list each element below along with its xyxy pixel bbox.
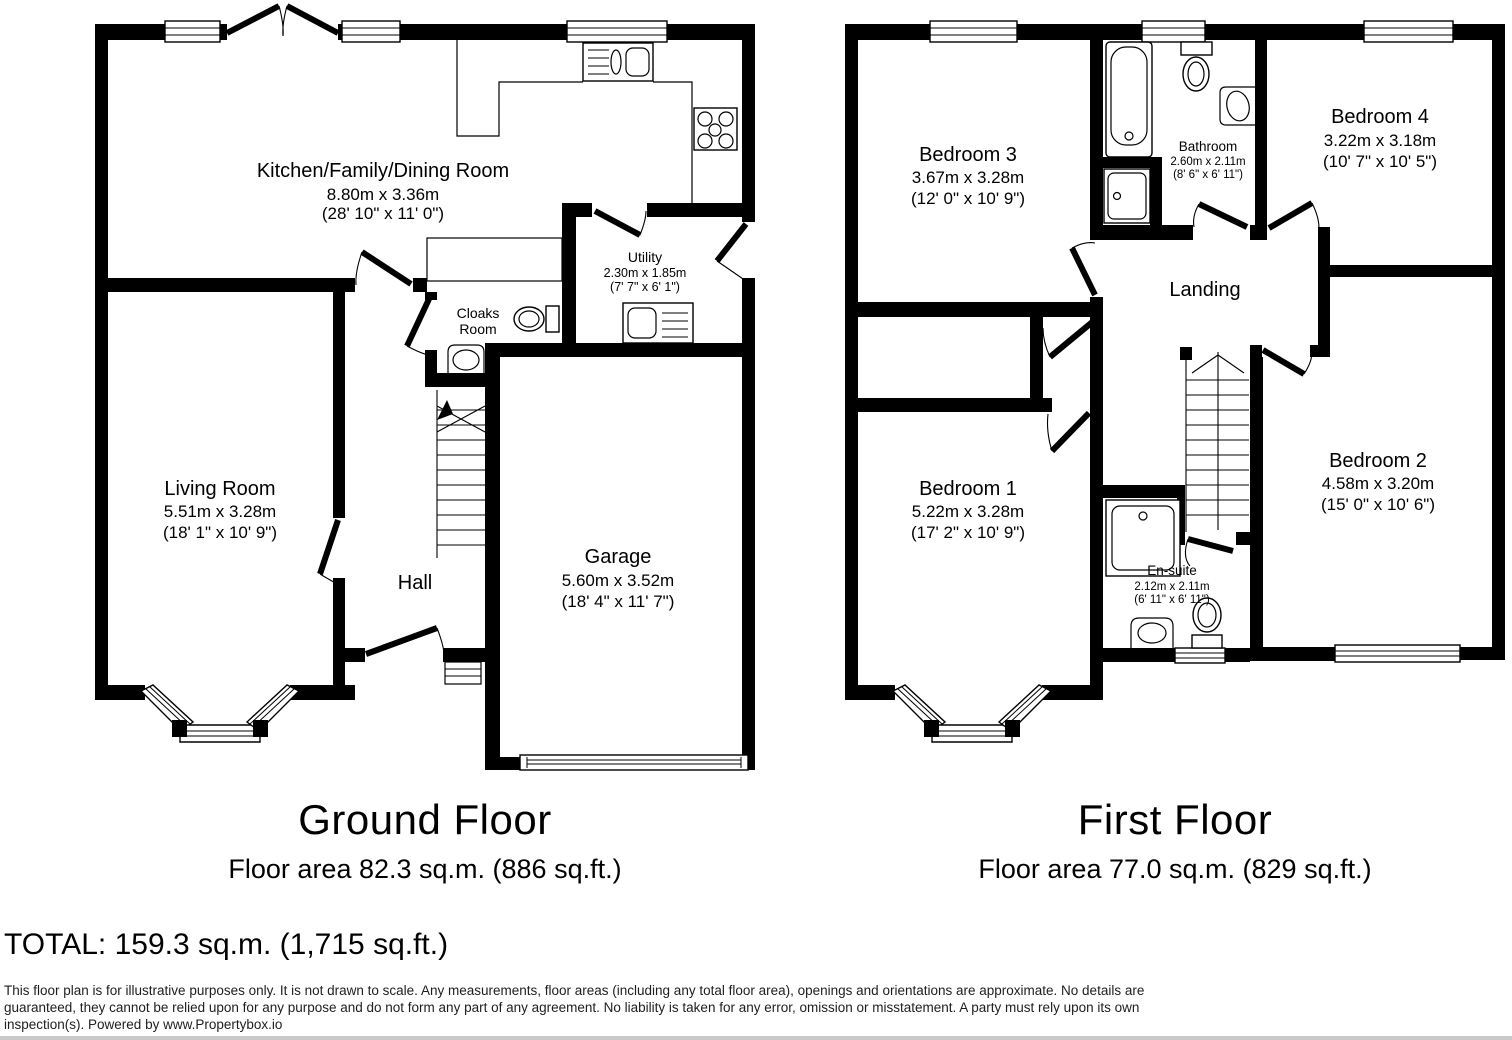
svg-text:Bedroom 1: Bedroom 1 (919, 478, 1017, 500)
svg-text:5.22m x 3.28m: 5.22m x 3.28m (912, 502, 1024, 521)
room-label-living: Living Room 5.51m x 3.28m (18' 1" x 10' … (163, 478, 277, 542)
basin-icon (1220, 87, 1255, 125)
door (1194, 204, 1247, 227)
toilet-icon (514, 306, 559, 332)
room-label-landing: Landing (1169, 279, 1240, 301)
stairs (1186, 350, 1249, 532)
toilet-icon (1181, 42, 1212, 91)
window (1335, 645, 1460, 662)
svg-text:4.58m x 3.20m: 4.58m x 3.20m (1322, 474, 1434, 493)
front-door-steps (445, 662, 481, 684)
room-label-utility: Utility 2.30m x 1.85m (7' 7" x 6' 1") (604, 249, 687, 294)
svg-text:(7' 7" x 6' 1"): (7' 7" x 6' 1") (610, 280, 680, 294)
svg-text:2.60m x 2.11m: 2.60m x 2.11m (1170, 156, 1245, 168)
svg-text:Bedroom 4: Bedroom 4 (1331, 106, 1429, 128)
french-doors (227, 6, 338, 36)
svg-text:(15' 0" x 10' 6"): (15' 0" x 10' 6") (1321, 495, 1435, 514)
hob-icon (694, 108, 737, 150)
svg-text:(6' 11" x 6' 11"): (6' 11" x 6' 11") (1134, 594, 1210, 606)
stairs (437, 390, 485, 558)
bay-window (141, 685, 299, 742)
window (1175, 648, 1225, 663)
window (165, 21, 220, 42)
svg-text:3.67m x 3.28m: 3.67m x 3.28m (912, 168, 1024, 187)
first-floor-plan: Bedroom 3 3.67m x 3.28m (12' 0" x 10' 9"… (845, 21, 1505, 742)
svg-text:Hall: Hall (398, 572, 432, 594)
kitchen-sink (583, 43, 653, 81)
door (407, 299, 429, 355)
svg-text:3.22m x 3.18m: 3.22m x 3.18m (1324, 131, 1436, 150)
svg-text:5.51m x 3.28m: 5.51m x 3.28m (164, 502, 276, 521)
window (930, 21, 1017, 42)
svg-text:2.30m x 1.85m: 2.30m x 1.85m (604, 266, 687, 280)
bottom-divider (0, 1036, 1512, 1040)
door (717, 224, 746, 279)
first-floor-area: Floor area 77.0 sq.m. (829 sq.ft.) (845, 854, 1505, 885)
room-label-bed2: Bedroom 2 4.58m x 3.20m (15' 0" x 10' 6"… (1321, 450, 1435, 514)
svg-text:(18' 1" x 10' 9"): (18' 1" x 10' 9") (163, 523, 277, 542)
door (1185, 539, 1233, 566)
svg-text:(17' 2" x 10' 9"): (17' 2" x 10' 9") (911, 523, 1025, 542)
door (1048, 413, 1090, 451)
svg-text:Cloaks: Cloaks (457, 305, 500, 321)
ground-floor-area: Floor area 82.3 sq.m. (886 sq.ft.) (95, 854, 755, 885)
svg-text:5.60m x 3.52m: 5.60m x 3.52m (562, 571, 674, 590)
svg-text:Garage: Garage (585, 546, 652, 568)
svg-text:(12' 0" x 10' 9"): (12' 0" x 10' 9") (911, 189, 1025, 208)
room-label-bed4: Bedroom 4 3.22m x 3.18m (10' 7" x 10' 5"… (1323, 106, 1437, 171)
bath-icon (1106, 42, 1152, 157)
svg-text:Bathroom: Bathroom (1179, 139, 1238, 154)
door (1263, 350, 1312, 374)
door (366, 628, 444, 655)
window (567, 21, 667, 42)
room-label-hall: Hall (398, 572, 432, 594)
garage-door (520, 755, 748, 770)
total-area: TOTAL: 159.3 sq.m. (1,715 sq.ft.) (4, 928, 448, 962)
svg-text:Landing: Landing (1169, 279, 1240, 301)
svg-text:Kitchen/Family/Dining Room: Kitchen/Family/Dining Room (257, 160, 509, 182)
room-label-cloaks: Cloaks Room (457, 305, 500, 337)
window (1142, 21, 1205, 42)
room-label-bed3: Bedroom 3 3.67m x 3.28m (12' 0" x 10' 9"… (911, 144, 1025, 208)
basin-icon (448, 345, 484, 374)
svg-text:2.12m x 2.11m: 2.12m x 2.11m (1134, 581, 1209, 593)
basin-icon (1131, 618, 1173, 648)
svg-text:(8' 6" x 6' 11"): (8' 6" x 6' 11") (1173, 169, 1243, 181)
shower-icon (1104, 169, 1150, 223)
ground-floor-title: Ground Floor (95, 796, 755, 844)
room-label-bathroom: Bathroom 2.60m x 2.11m (8' 6" x 6' 11") (1170, 139, 1245, 181)
room-label-garage: Garage 5.60m x 3.52m (18' 4" x 11' 7") (562, 546, 675, 611)
first-floor-title: First Floor (845, 796, 1505, 844)
svg-text:En-suite: En-suite (1147, 563, 1197, 578)
door (1043, 319, 1096, 357)
door (356, 252, 411, 285)
disclaimer-text: This floor plan is for illustrative purp… (4, 982, 1152, 1034)
svg-text:(10' 7" x 10' 5"): (10' 7" x 10' 5") (1323, 152, 1437, 171)
room-label-bed1: Bedroom 1 5.22m x 3.28m (17' 2" x 10' 9"… (911, 478, 1025, 542)
floorplan-page: Kitchen/Family/Dining Room 8.80m x 3.36m… (0, 0, 1512, 1040)
svg-text:Bedroom 2: Bedroom 2 (1329, 450, 1427, 472)
svg-text:Living Room: Living Room (164, 478, 275, 500)
svg-text:Bedroom 3: Bedroom 3 (919, 144, 1017, 166)
ground-floor-plan: Kitchen/Family/Dining Room 8.80m x 3.36m… (95, 6, 755, 770)
svg-text:Utility: Utility (628, 249, 662, 265)
door (1269, 203, 1319, 228)
svg-text:8.80m x 3.36m: 8.80m x 3.36m (327, 185, 439, 204)
door (1072, 243, 1095, 295)
svg-text:Room: Room (459, 321, 496, 337)
utility-sink (623, 303, 693, 343)
floorplan-drawing: Kitchen/Family/Dining Room 8.80m x 3.36m… (0, 0, 1512, 800)
room-label-kitchen: Kitchen/Family/Dining Room 8.80m x 3.36m… (257, 160, 509, 223)
door (320, 520, 338, 584)
bay-window (893, 685, 1051, 742)
door (595, 211, 646, 235)
ground-walls (95, 24, 755, 770)
svg-text:(18' 4" x 11' 7"): (18' 4" x 11' 7") (562, 592, 675, 611)
window (1364, 21, 1453, 42)
svg-text:(28' 10" x 11' 0"): (28' 10" x 11' 0") (322, 204, 444, 223)
window (342, 21, 400, 42)
